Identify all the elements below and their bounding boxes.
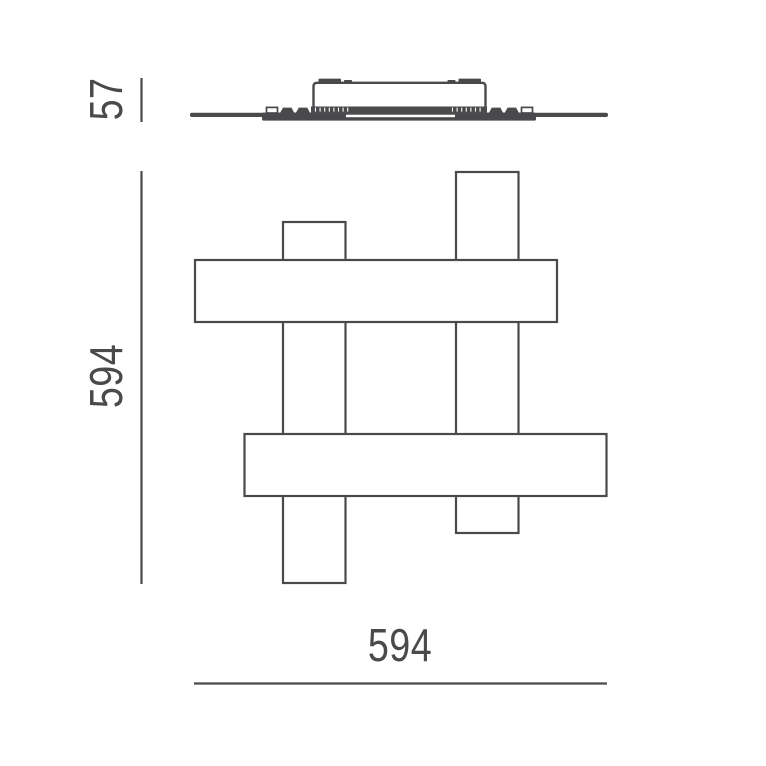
profile-clip-square-left	[267, 107, 278, 113]
profile-base-light-slot	[346, 115, 455, 118]
profile-clip-square-right	[522, 107, 533, 113]
profile-flange-teeth-right	[453, 108, 481, 112]
front-height-dimension-label: 594	[83, 319, 129, 434]
front-horizontal-bar-lower	[245, 434, 607, 496]
profile-flange	[311, 107, 487, 113]
profile-height-dimension-label: 57	[83, 42, 129, 157]
profile-tab-right-wide	[459, 79, 482, 84]
profile-clip-bumps-left	[280, 108, 310, 113]
side-profile-view	[190, 79, 608, 121]
profile-clip-bumps-right	[489, 108, 519, 113]
dimension-drawing-canvas: 57 594 594	[0, 0, 766, 766]
front-view	[195, 172, 607, 583]
profile-driver-box	[314, 83, 486, 110]
profile-tab-left-small	[344, 80, 352, 83]
front-width-dimension-label: 594	[343, 622, 458, 668]
profile-tab-left-wide	[319, 79, 342, 84]
profile-tab-right-small	[448, 80, 456, 83]
front-horizontal-bar-upper	[195, 260, 557, 322]
